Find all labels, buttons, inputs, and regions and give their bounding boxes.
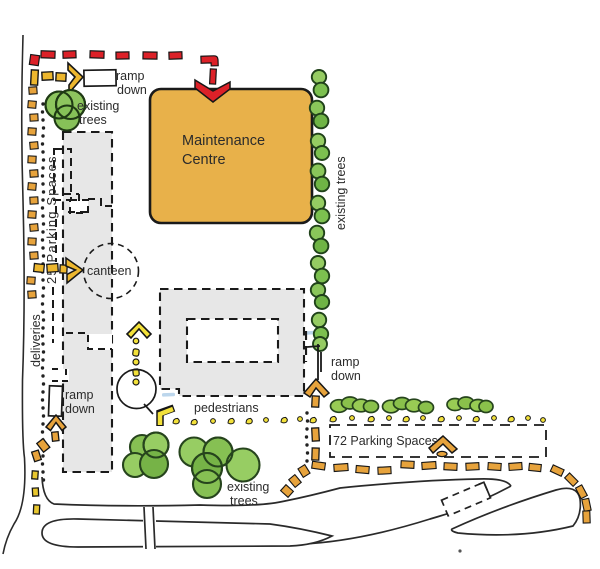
svg-text:down: down (65, 402, 95, 416)
svg-text:ramp: ramp (116, 69, 145, 83)
svg-text:down: down (117, 83, 147, 97)
svg-text:72 Parking Spaces: 72 Parking Spaces (333, 434, 438, 448)
svg-text:existing: existing (227, 480, 269, 494)
svg-text:down: down (331, 369, 361, 383)
svg-text:ramp: ramp (65, 388, 94, 402)
svg-text:existing trees: existing trees (334, 156, 348, 230)
svg-text:deliveries: deliveries (29, 314, 43, 367)
svg-text:trees: trees (79, 113, 107, 127)
svg-text:canteen: canteen (87, 264, 132, 278)
svg-text:Centre: Centre (182, 152, 226, 168)
svg-text:pedestrians: pedestrians (194, 401, 259, 415)
svg-text:ramp: ramp (331, 355, 360, 369)
svg-text:existing: existing (77, 99, 119, 113)
svg-text:Maintenance: Maintenance (182, 133, 265, 149)
